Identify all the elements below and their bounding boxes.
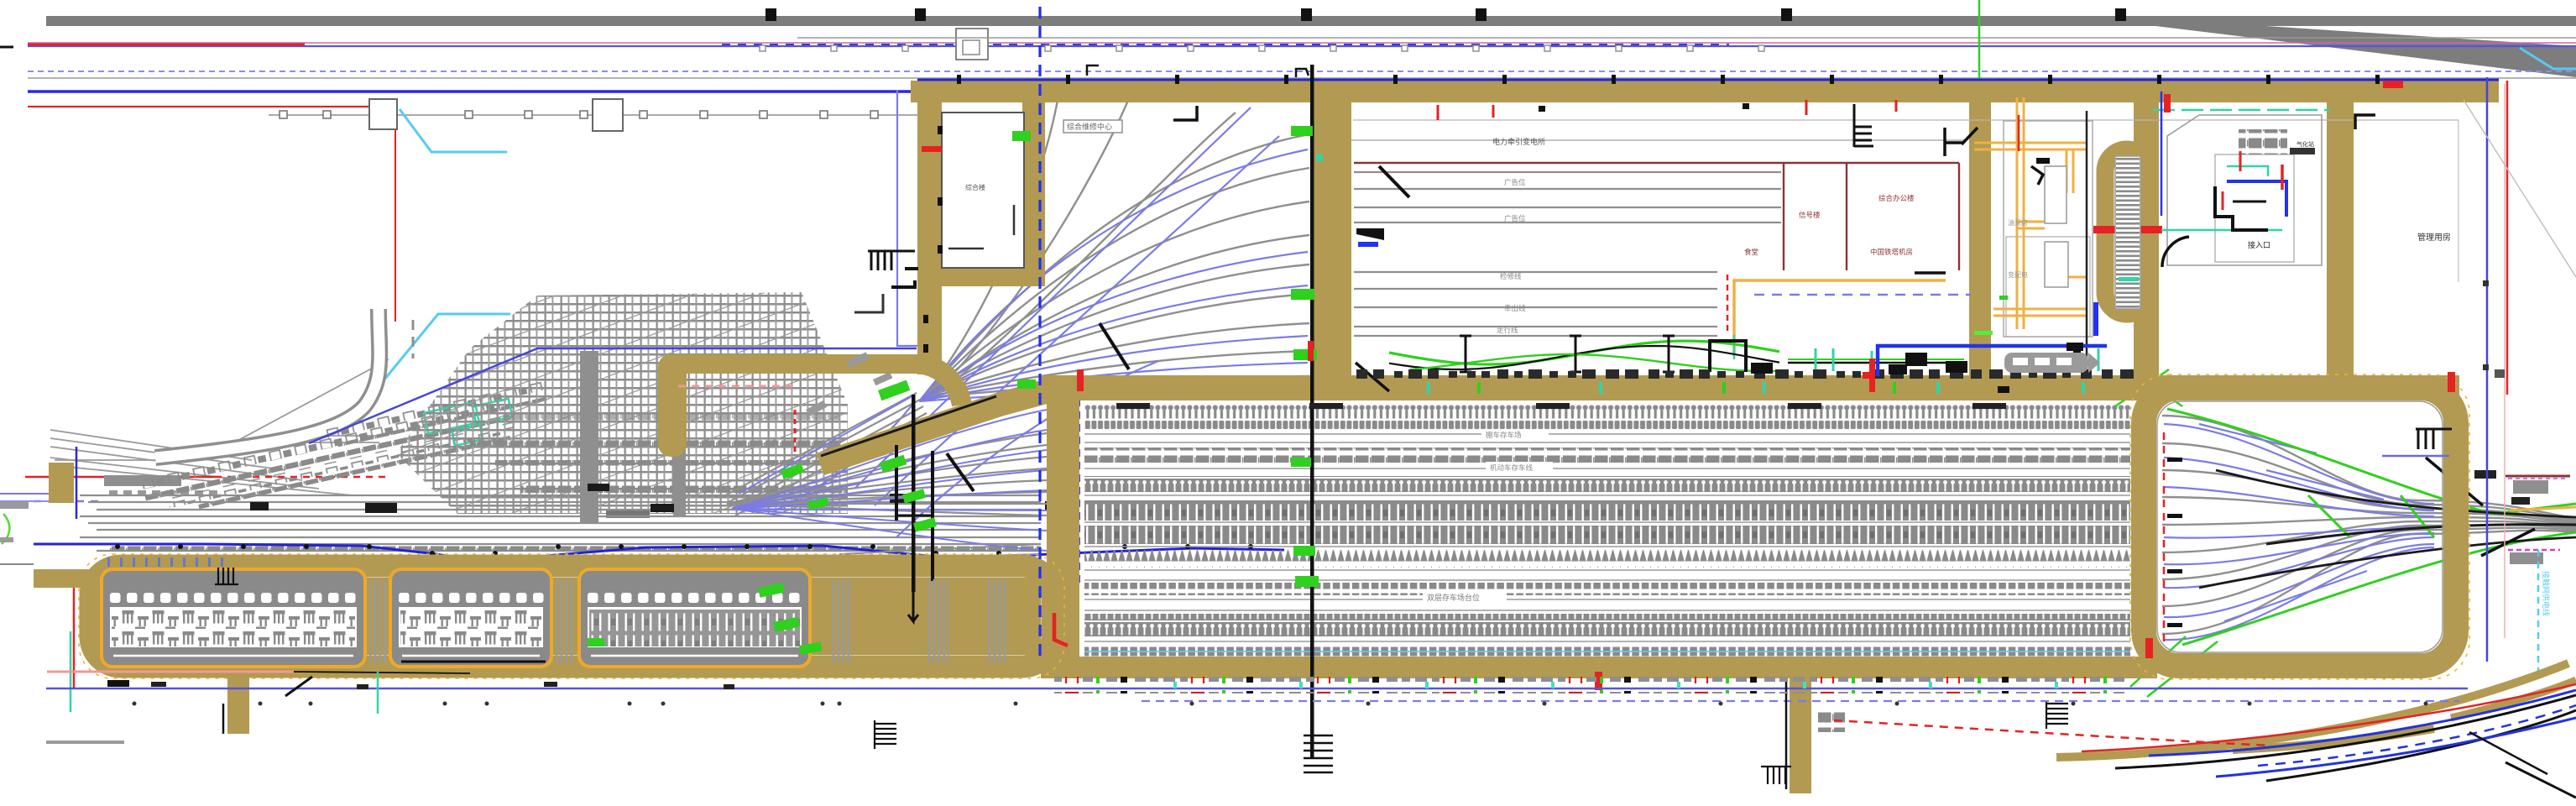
svg-text:棚车存车场: 棚车存车场	[1486, 431, 1522, 439]
svg-text:双层存车场台位: 双层存车场台位	[1427, 593, 1480, 602]
svg-text:中国铁塔机房: 中国铁塔机房	[1870, 248, 1913, 256]
svg-text:广告位: 广告位	[1504, 178, 1526, 186]
svg-text:电力牵引变电所: 电力牵引变电所	[1492, 137, 1545, 146]
svg-text:综合楼: 综合楼	[965, 183, 985, 191]
svg-text:管理用房: 管理用房	[2417, 232, 2451, 243]
svg-text:牵出线: 牵出线	[1504, 304, 1526, 312]
svg-text:广告位: 广告位	[1504, 214, 1526, 222]
svg-text:走行线: 走行线	[1497, 326, 1518, 334]
svg-text:接触网供电线: 接触网供电线	[2542, 571, 2551, 616]
svg-text:检修线: 检修线	[1500, 272, 1522, 280]
svg-text:信号楼: 信号楼	[1799, 211, 1821, 219]
svg-text:接入口: 接入口	[2248, 240, 2270, 249]
svg-text:综合维修中心: 综合维修中心	[1067, 122, 1112, 131]
svg-text:油泵房: 油泵房	[2008, 218, 2028, 227]
svg-text:气化站: 气化站	[2296, 140, 2314, 148]
svg-text:机动车存车线: 机动车存车线	[1490, 463, 1534, 472]
svg-text:食堂: 食堂	[1744, 248, 1758, 256]
svg-text:综合办公楼: 综合办公楼	[1878, 194, 1915, 202]
svg-text:变配电: 变配电	[2008, 270, 2028, 279]
